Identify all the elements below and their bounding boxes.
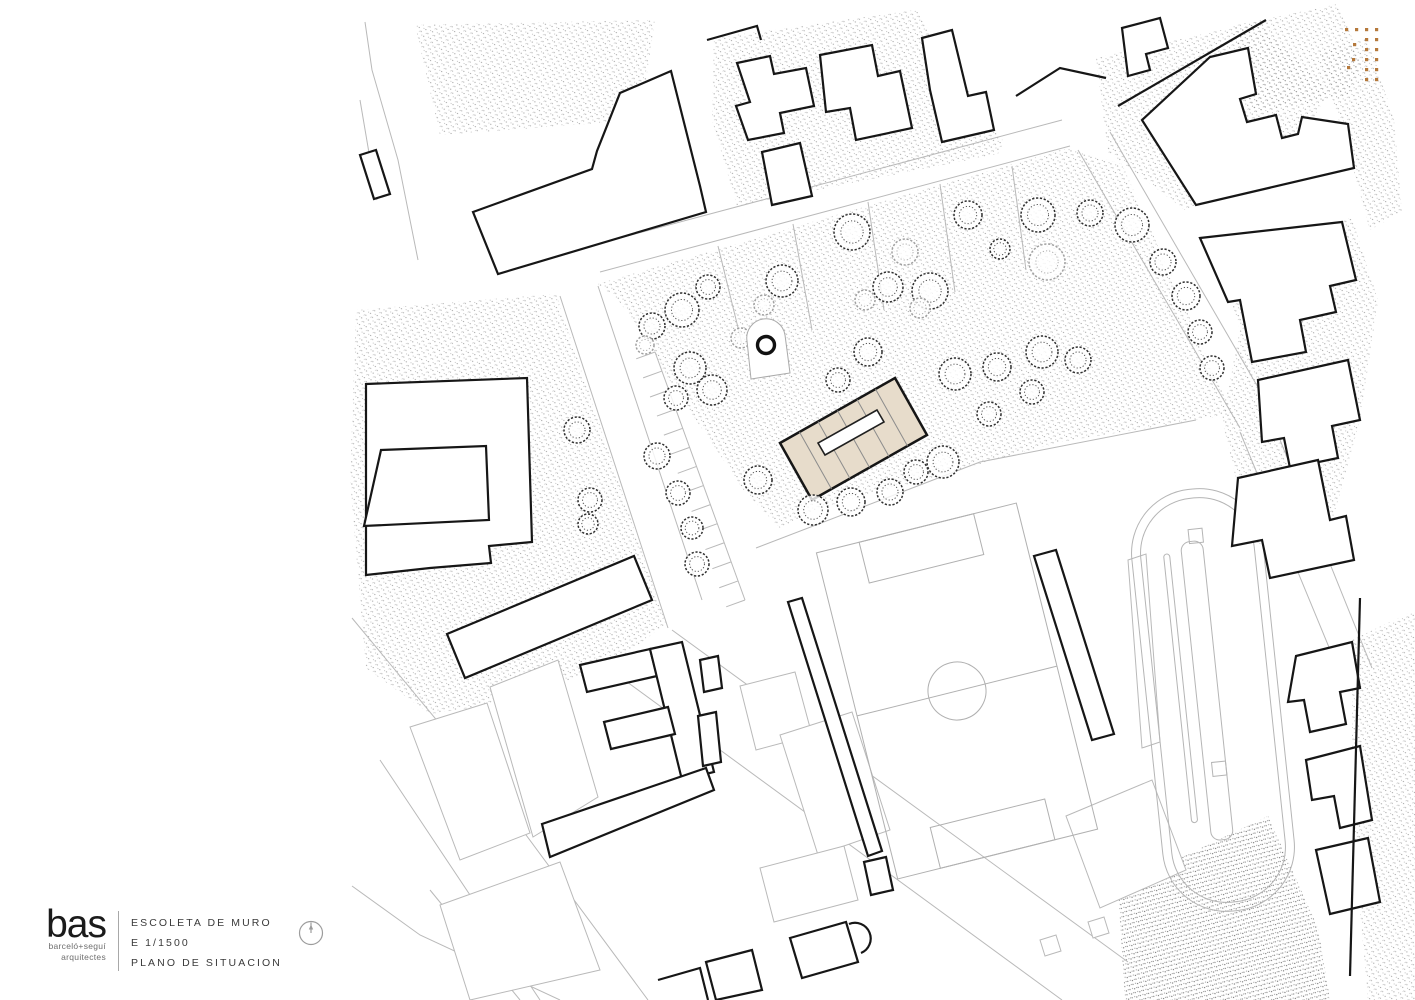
titleblock-divider [118, 911, 119, 971]
firm-logo: bas [46, 909, 106, 941]
firm-name: barceló+seguí [46, 941, 106, 952]
title-block: bas barceló+seguí arquitectes ESCOLETA D… [46, 909, 326, 977]
plan-root [350, 4, 1415, 1000]
site-plan-canvas [0, 0, 1415, 1000]
firm-logo-block: bas barceló+seguí arquitectes [46, 909, 106, 964]
drawing-scale: E 1/1500 [131, 937, 282, 949]
firm-role: arquitectes [46, 952, 106, 963]
drawing-title: PLANO DE SITUACION [131, 957, 282, 969]
north-arrow-icon [298, 919, 326, 947]
drawing-sheet: bas barceló+seguí arquitectes ESCOLETA D… [0, 0, 1415, 1000]
titleblock-text: ESCOLETA DE MURO E 1/1500 PLANO DE SITUA… [131, 909, 282, 977]
project-title: ESCOLETA DE MURO [131, 917, 282, 929]
